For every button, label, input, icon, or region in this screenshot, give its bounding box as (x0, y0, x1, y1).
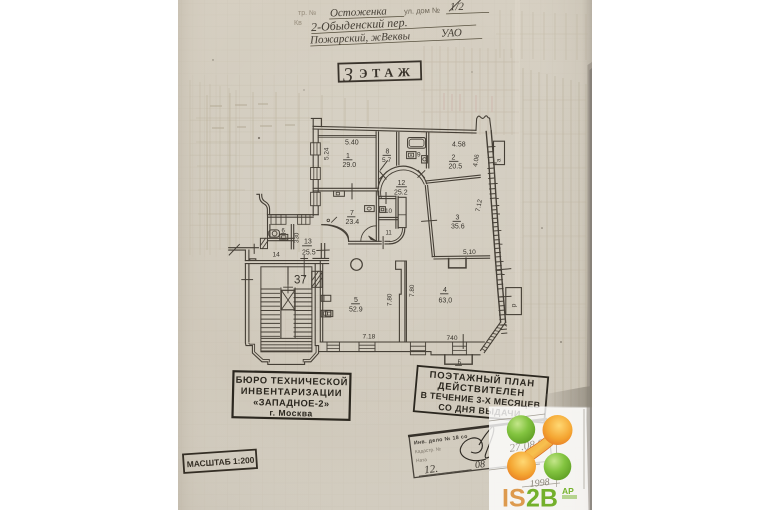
svg-text:7: 7 (350, 210, 354, 217)
svg-text:330: 330 (294, 232, 301, 243)
svg-text:25.2: 25.2 (394, 190, 408, 197)
svg-text:г. Москва: г. Москва (269, 408, 313, 419)
svg-text:20.5: 20.5 (449, 164, 463, 171)
svg-text:IS: IS (502, 485, 526, 510)
svg-text:АР: АР (562, 486, 574, 496)
svg-text:23.4: 23.4 (346, 219, 360, 226)
svg-text:63,0: 63,0 (439, 298, 453, 305)
svg-text:740: 740 (447, 335, 458, 342)
svg-text:8: 8 (386, 149, 390, 156)
svg-text:13: 13 (304, 239, 312, 246)
svg-text:3: 3 (342, 64, 354, 86)
svg-text:УАО: УАО (441, 27, 462, 40)
svg-text:5: 5 (354, 297, 358, 304)
svg-text:12: 12 (398, 180, 406, 187)
svg-text:37: 37 (294, 275, 307, 287)
svg-text:3: 3 (456, 215, 460, 222)
svg-text:5.7: 5.7 (382, 157, 391, 164)
svg-text:4: 4 (443, 287, 447, 294)
svg-text:5,10: 5,10 (463, 249, 476, 256)
svg-text:2B: 2B (526, 485, 558, 510)
svg-text:7.80: 7.80 (387, 293, 394, 306)
svg-text:5.24: 5.24 (324, 147, 331, 160)
svg-text:29.0: 29.0 (343, 162, 357, 169)
svg-text:4.58: 4.58 (452, 142, 466, 149)
svg-text:Кв: Кв (294, 20, 302, 27)
svg-text:7.80: 7.80 (409, 284, 416, 297)
svg-text:тр. №: тр. № (298, 10, 317, 17)
svg-text:5.40: 5.40 (345, 139, 359, 146)
svg-text:2: 2 (452, 155, 456, 162)
svg-text:25.5: 25.5 (302, 250, 316, 257)
svg-text:14: 14 (273, 252, 281, 259)
svg-text:ул. дом №: ул. дом № (404, 6, 440, 16)
svg-text:7.18: 7.18 (363, 334, 376, 341)
svg-text:ЭТАЖ: ЭТАЖ (359, 65, 415, 81)
svg-text:52.9: 52.9 (349, 307, 363, 314)
svg-text:1: 1 (346, 153, 350, 160)
svg-text:1/2: 1/2 (450, 1, 465, 14)
svg-text:35.6: 35.6 (451, 224, 465, 231)
svg-text:11: 11 (386, 231, 393, 237)
svg-text:10: 10 (385, 208, 393, 215)
svg-text:9: 9 (417, 152, 421, 159)
